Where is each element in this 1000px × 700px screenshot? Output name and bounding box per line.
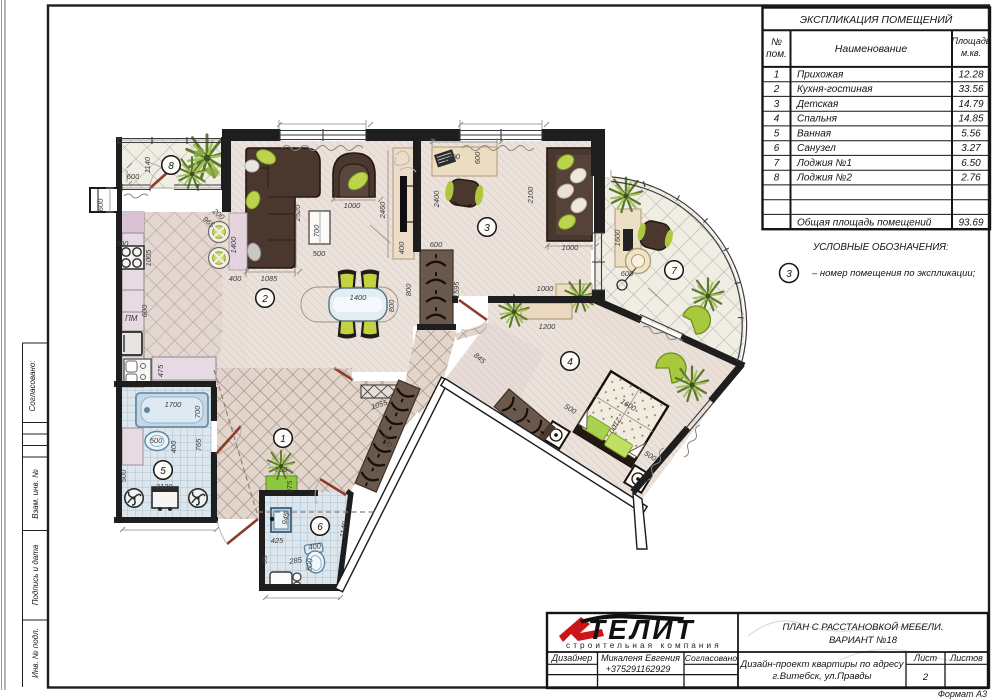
svg-text:5: 5 [774,128,780,139]
svg-text:400: 400 [308,541,322,552]
svg-text:2: 2 [261,294,268,305]
svg-text:Площадь: Площадь [951,36,990,46]
svg-text:1700: 1700 [165,400,183,409]
svg-text:Согласовано: Согласовано [685,653,738,663]
svg-text:475: 475 [156,364,165,377]
svg-text:600: 600 [96,198,105,211]
svg-text:– номер помещения по эксплика: – номер помещения по экспликации; [811,268,976,279]
svg-text:1000: 1000 [344,201,362,210]
svg-text:Взам. инв. №: Взам. инв. № [31,469,40,519]
svg-text:8: 8 [774,173,780,184]
svg-text:400: 400 [169,440,178,453]
svg-text:ЭКСПЛИКАЦИЯ ПОМЕЩЕНИЙ: ЭКСПЛИКАЦИЯ ПОМЕЩЕНИЙ [800,13,953,26]
svg-text:7: 7 [774,158,780,169]
svg-text:1: 1 [280,434,286,445]
svg-text:строительная компания: строительная компания [566,641,722,650]
svg-text:500: 500 [304,557,314,571]
svg-text:Кухня-гостиная: Кухня-гостиная [797,84,873,95]
svg-text:600: 600 [140,304,149,317]
svg-text:Согласовано:: Согласовано: [28,360,37,411]
svg-text:Лоджия №1: Лоджия №1 [796,158,852,169]
svg-text:400: 400 [229,274,242,283]
svg-text:м.кв.: м.кв. [961,48,981,58]
svg-text:УСЛОВНЫЕ ОБОЗНАЧЕНИЯ:: УСЛОВНЫЕ ОБОЗНАЧЕНИЯ: [812,242,949,253]
svg-text:ВАРИАНТ №18: ВАРИАНТ №18 [829,635,898,646]
svg-text:1000: 1000 [562,243,580,252]
svg-text:400: 400 [397,241,406,254]
svg-text:1595: 1595 [452,281,461,299]
svg-text:Общая площадь помещений: Общая площадь помещений [797,217,932,229]
svg-text:750: 750 [275,465,288,474]
svg-text:1085: 1085 [261,274,279,283]
svg-text:8: 8 [168,161,174,172]
svg-text:ПМ: ПМ [125,314,138,323]
svg-text:2: 2 [922,672,929,683]
svg-text:800: 800 [387,299,396,312]
svg-text:14.79: 14.79 [958,99,983,110]
svg-text:600: 600 [127,172,140,181]
svg-text:Инв. № подл.: Инв. № подл. [31,628,40,678]
svg-text:2460: 2460 [378,201,387,220]
svg-text:14.85: 14.85 [958,114,983,125]
svg-text:6.50: 6.50 [961,158,981,169]
svg-text:7: 7 [671,266,677,277]
svg-text:3: 3 [774,99,780,110]
svg-text:Дизайнер: Дизайнер [551,653,592,663]
svg-text:Лист: Лист [913,653,938,663]
svg-text:1400: 1400 [350,293,368,302]
svg-text:1005: 1005 [144,249,153,267]
svg-text:700: 700 [312,224,321,237]
svg-text:765: 765 [194,438,203,451]
svg-text:6: 6 [774,143,780,154]
svg-text:1: 1 [774,70,780,81]
svg-text:Дизайн-проект квартиры по адре: Дизайн-проект квартиры по адресу [740,659,905,670]
svg-text:г.Витебск, ул.Правды: г.Витебск, ул.Правды [772,671,871,682]
svg-text:Листов: Листов [949,653,983,663]
svg-text:Лоджия №2: Лоджия №2 [796,173,852,184]
svg-text:500: 500 [313,249,326,258]
svg-text:600: 600 [430,240,443,249]
svg-text:500: 500 [119,469,128,482]
svg-text:5.56: 5.56 [961,128,981,139]
svg-text:4: 4 [567,357,573,368]
svg-text:600: 600 [473,151,482,164]
svg-text:Спальня: Спальня [797,114,838,125]
svg-text:6: 6 [317,522,323,533]
svg-text:Детская: Детская [796,99,839,110]
svg-text:Наименование: Наименование [835,43,908,55]
svg-text:ПЛАН С РАССТАНОВКОЙ МЕБЕЛИ.: ПЛАН С РАССТАНОВКОЙ МЕБЕЛИ. [783,621,944,633]
svg-text:1400: 1400 [229,236,238,254]
svg-text:4: 4 [774,114,780,125]
svg-text:33.56: 33.56 [958,84,983,95]
svg-text:2400: 2400 [432,190,441,209]
svg-text:1000: 1000 [537,284,555,293]
svg-text:2100: 2100 [526,186,535,205]
svg-text:3: 3 [484,223,490,234]
svg-text:300: 300 [116,239,129,248]
svg-text:пом.: пом. [766,49,787,60]
svg-text:1600: 1600 [613,229,622,247]
svg-text:375: 375 [285,480,294,493]
svg-text:2: 2 [773,84,780,95]
svg-text:Ванная: Ванная [797,128,832,139]
svg-text:3.27: 3.27 [961,143,981,154]
svg-text:Санузел: Санузел [797,143,836,154]
svg-text:800: 800 [404,283,413,296]
svg-text:№: № [771,37,782,48]
svg-text:425: 425 [271,536,284,545]
svg-text:1140: 1140 [143,156,152,173]
svg-text:95: 95 [260,554,270,564]
svg-text:Микаленя Евгения: Микаленя Евгения [601,653,680,663]
svg-text:Подпись и дата: Подпись и дата [31,544,40,605]
svg-text:12.28: 12.28 [958,70,983,81]
svg-text:Формат А3: Формат А3 [938,689,987,699]
svg-text:1200: 1200 [539,322,557,331]
svg-text:5: 5 [160,466,166,477]
svg-text:+375291162929: +375291162929 [606,664,671,674]
svg-text:500: 500 [150,436,163,445]
svg-text:2120: 2120 [155,482,174,491]
svg-text:700: 700 [193,405,202,418]
svg-text:Прихожая: Прихожая [797,70,844,81]
svg-text:93.69: 93.69 [958,218,983,229]
svg-text:2.76: 2.76 [960,173,981,184]
svg-text:2520: 2520 [293,204,302,223]
svg-text:3: 3 [786,269,792,280]
svg-text:600: 600 [621,269,634,278]
